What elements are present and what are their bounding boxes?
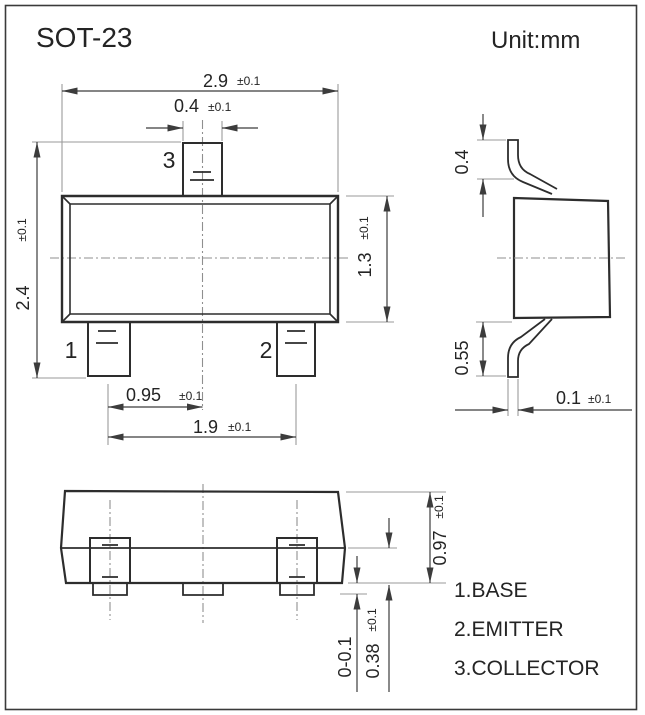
front-body-corner-bevels (62, 196, 338, 322)
dim-value: 0.4 (174, 96, 199, 116)
dim-tolerance: ±0.1 (15, 218, 29, 242)
dim-tolerance: ±0.1 (432, 495, 446, 519)
front-body-inner (70, 204, 330, 314)
package-outline-drawing: SOT-23 Unit:mm 3 1 2 2.9 ±0.1 0.4 ±0.1 (0, 0, 645, 715)
dim-value: 0.38 (363, 643, 383, 678)
dim-pin-pitch: 0.95 ±0.1 (108, 385, 203, 407)
dim-value: 2.9 (203, 71, 228, 91)
dim-value: 0.55 (452, 340, 472, 375)
dim-value: 0.97 (430, 530, 450, 565)
dim-pin-span: 1.9 ±0.1 (108, 417, 296, 437)
dim-tolerance: ±0.1 (237, 74, 261, 88)
side-lower-lead (508, 319, 552, 377)
bottom-view: 0.97 ±0.1 0-0.1 0.38 ±0.1 (61, 484, 450, 692)
dim-tolerance: ±0.1 (228, 420, 252, 434)
dim-value: 0.1 (556, 388, 581, 408)
pin1-label: 1 (65, 337, 78, 363)
side-upper-lead (508, 140, 557, 194)
dim-value: 2.4 (13, 285, 33, 310)
dim-tolerance: ±0.1 (208, 100, 232, 114)
dim-body-thickness: 0.97 ±0.1 (430, 492, 450, 583)
dim-overall-height: 2.4 ±0.1 (13, 142, 37, 378)
pin2-label: 2 (260, 337, 273, 363)
dim-value: 1.9 (193, 417, 218, 437)
side-extension-lines (476, 140, 518, 416)
dim-value: 0.4 (452, 149, 472, 174)
dim-body-width: 2.9 ±0.1 (62, 71, 338, 91)
front-pin-tabs (88, 143, 315, 376)
dim-tolerance: ±0.1 (179, 389, 203, 403)
dim-base-to-seating: 0.38 ±0.1 (363, 518, 389, 692)
pin3-label: 3 (163, 147, 176, 173)
dim-value: 0-0.1 (335, 636, 355, 677)
dim-lead-thickness: 0.1 ±0.1 (455, 388, 632, 410)
front-centerlines (50, 120, 350, 410)
front-extension-lines (32, 84, 394, 445)
dim-value: 0.95 (126, 385, 161, 405)
dim-value: 1.3 (355, 252, 375, 277)
pin-legend: 1.BASE 2.EMITTER 3.COLLECTOR (454, 579, 600, 680)
legend-item-collector: 3.COLLECTOR (454, 657, 600, 680)
dim-upper-lead: 0.4 (452, 114, 483, 217)
front-view: 3 1 2 2.9 ±0.1 0.4 ±0.1 2.4 ±0.1 1.3 ±0 (13, 71, 394, 445)
bottom-centerlines (110, 484, 297, 623)
side-view: 0.4 0.55 0.1 ±0.1 (452, 114, 632, 416)
page-title: SOT-23 (36, 22, 132, 53)
legend-item-base: 1.BASE (454, 579, 528, 602)
unit-label: Unit:mm (491, 27, 580, 54)
drawing-page: SOT-23 Unit:mm 3 1 2 2.9 ±0.1 0.4 ±0.1 (0, 0, 645, 715)
dim-standoff: 0-0.1 (335, 556, 357, 692)
front-body-outer (62, 196, 338, 322)
drawing-border (6, 6, 637, 710)
dim-tolerance: ±0.1 (588, 392, 612, 406)
legend-item-emitter: 2.EMITTER (454, 618, 564, 641)
dim-body-height: 1.3 ±0.1 (355, 196, 387, 322)
dim-tolerance: ±0.1 (365, 608, 379, 632)
dim-lower-lead: 0.55 (452, 322, 483, 376)
dim-tolerance: ±0.1 (357, 216, 371, 240)
